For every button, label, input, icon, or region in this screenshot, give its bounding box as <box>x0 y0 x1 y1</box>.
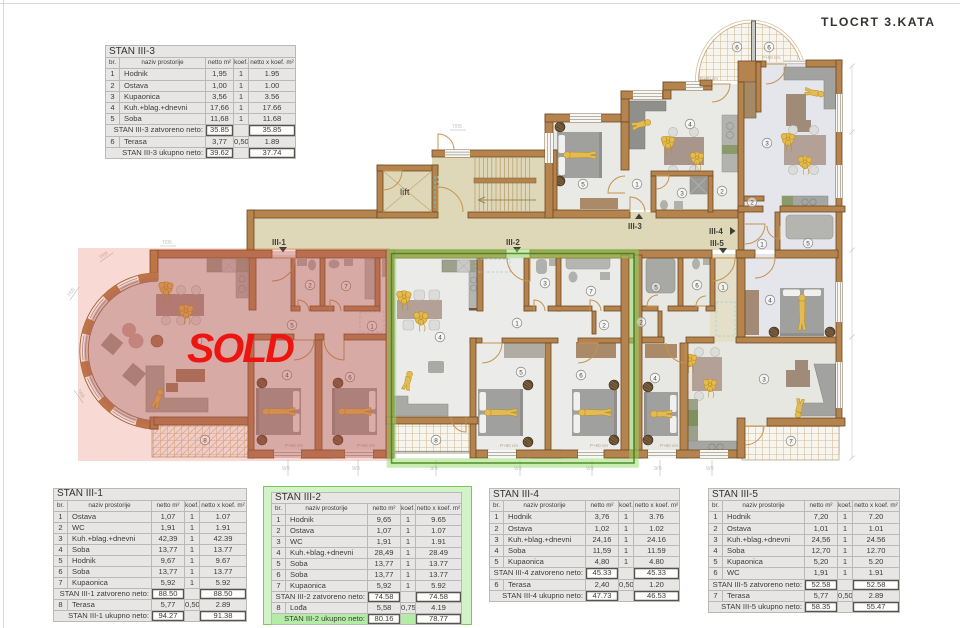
svg-text:III-2: III-2 <box>506 238 520 247</box>
svg-text:3: 3 <box>680 190 684 197</box>
svg-text:3: 3 <box>762 376 766 383</box>
svg-text:4: 4 <box>653 375 657 382</box>
svg-text:9/9: 9/9 <box>352 466 360 472</box>
svg-text:III-5: III-5 <box>710 239 724 248</box>
svg-text:5: 5 <box>519 369 523 376</box>
svg-text:lift: lift <box>400 187 410 198</box>
svg-text:1: 1 <box>721 284 725 291</box>
svg-text:5: 5 <box>654 284 658 291</box>
svg-text:6: 6 <box>735 44 739 51</box>
svg-text:1: 1 <box>760 241 764 248</box>
svg-text:P+60 cm: P+60 cm <box>660 443 678 448</box>
svg-text:7: 7 <box>789 438 793 445</box>
svg-text:6: 6 <box>579 372 583 379</box>
svg-text:3: 3 <box>765 140 769 147</box>
svg-text:9/9: 9/9 <box>654 466 662 472</box>
svg-text:6: 6 <box>695 282 699 289</box>
svg-text:III-4: III-4 <box>709 227 723 236</box>
svg-text:2: 2 <box>639 319 643 326</box>
svg-text:8: 8 <box>434 437 438 444</box>
svg-text:III-1: III-1 <box>272 238 286 247</box>
svg-text:9/9: 9/9 <box>706 466 714 472</box>
svg-text:3: 3 <box>543 280 547 287</box>
svg-text:P+60 cm: P+60 cm <box>590 443 608 448</box>
svg-text:2: 2 <box>602 322 606 329</box>
svg-text:1: 1 <box>635 181 639 188</box>
svg-text:2: 2 <box>750 199 754 206</box>
svg-text:P+60 cm: P+60 cm <box>500 443 518 448</box>
svg-text:5: 5 <box>581 181 585 188</box>
svg-text:4: 4 <box>688 121 692 128</box>
svg-text:4: 4 <box>438 334 442 341</box>
svg-text:5: 5 <box>806 240 810 247</box>
svg-text:9/9: 9/9 <box>282 466 290 472</box>
svg-text:4: 4 <box>768 297 772 304</box>
svg-text:III-3: III-3 <box>628 222 642 231</box>
svg-text:7: 7 <box>589 288 593 295</box>
svg-text:P+60 cm: P+60 cm <box>762 55 780 60</box>
svg-text:SOLD: SOLD <box>187 325 294 371</box>
svg-text:7/05: 7/05 <box>452 124 462 130</box>
svg-text:1: 1 <box>515 320 519 327</box>
svg-text:7/05: 7/05 <box>162 240 172 246</box>
svg-text:P+60 cm: P+60 cm <box>700 76 718 81</box>
svg-text:2: 2 <box>720 188 724 195</box>
svg-text:6: 6 <box>767 44 771 51</box>
